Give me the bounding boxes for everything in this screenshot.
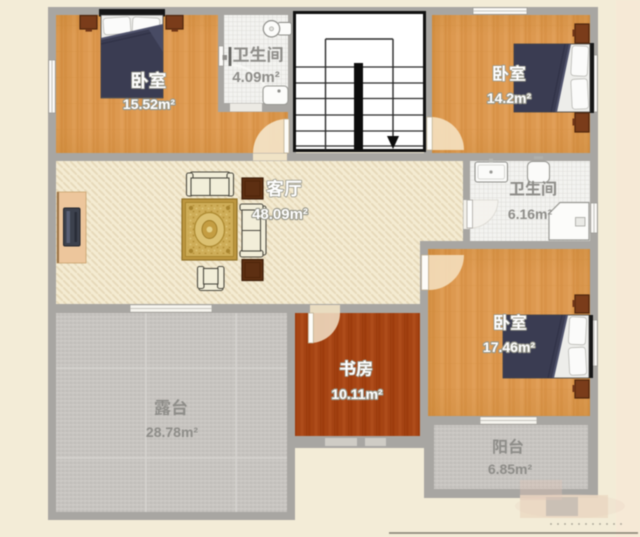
svg-text:10.11m²: 10.11m² — [331, 386, 383, 402]
svg-text:6.85m²: 6.85m² — [488, 461, 533, 477]
svg-text:15.52m²: 15.52m² — [123, 96, 175, 112]
svg-text:28.78m²: 28.78m² — [146, 424, 198, 440]
svg-text:6.16m²: 6.16m² — [508, 206, 553, 222]
svg-text:17.46m²: 17.46m² — [483, 339, 535, 355]
svg-text:48.09m²: 48.09m² — [252, 206, 308, 223]
svg-text:14.2m²: 14.2m² — [487, 90, 532, 106]
svg-text:4.09m²: 4.09m² — [232, 69, 280, 86]
